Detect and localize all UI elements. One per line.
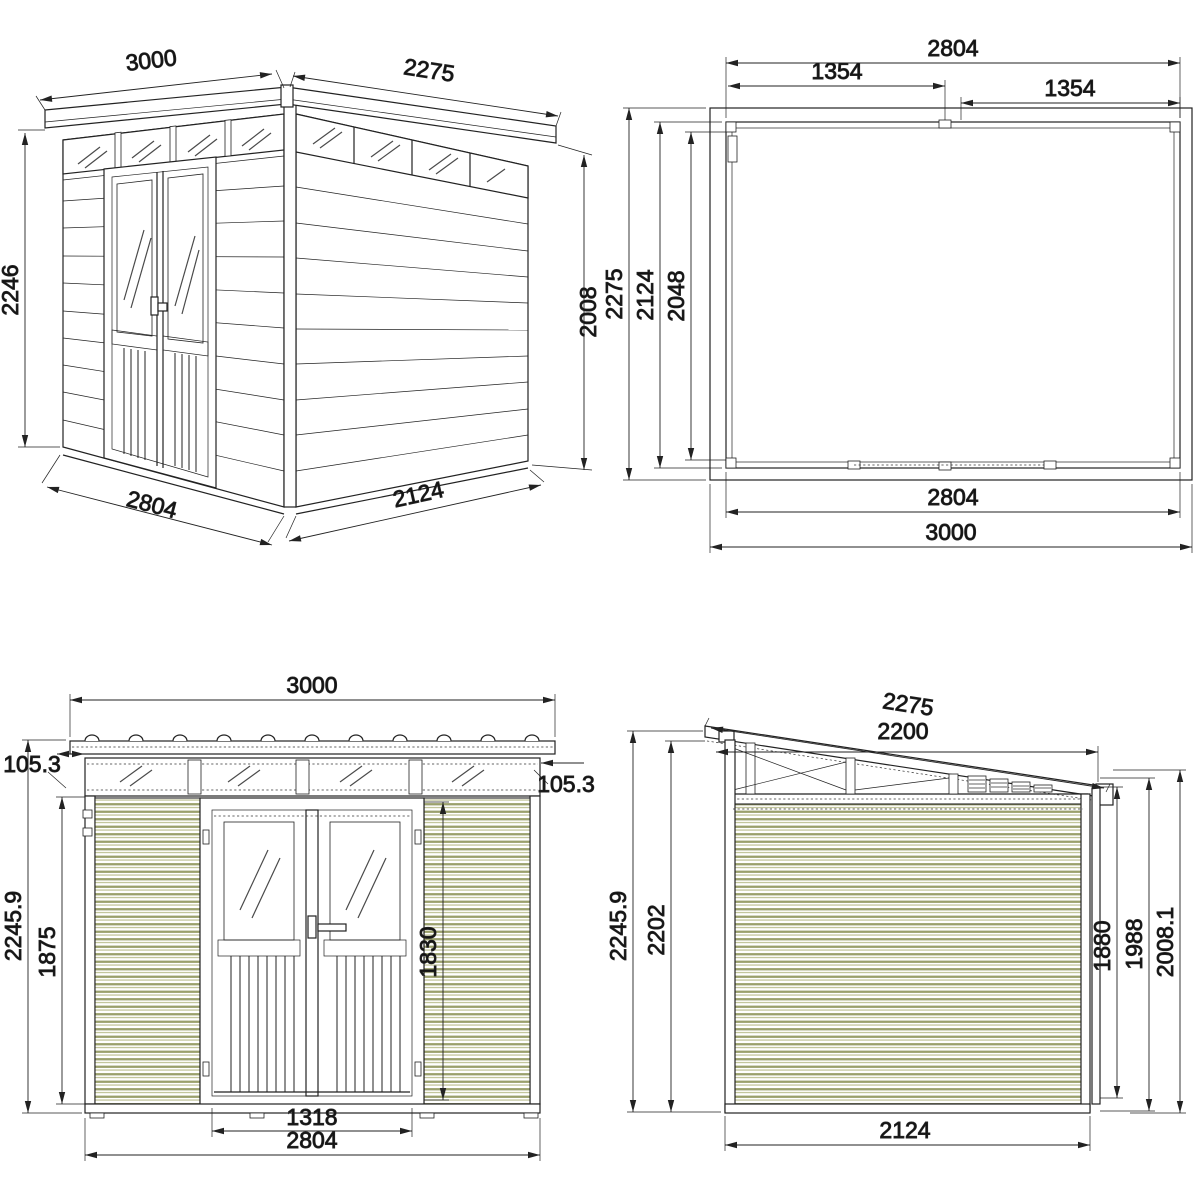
svg-text:2245.9: 2245.9 [0, 891, 26, 961]
svg-text:2246: 2246 [0, 264, 23, 315]
left-siding-panel [95, 798, 200, 1104]
dim-front-wall-2202: 2202 [643, 741, 705, 1112]
svg-text:3000: 3000 [286, 672, 337, 698]
svg-text:2202: 2202 [643, 904, 669, 955]
double-door [104, 157, 216, 488]
door-glass-left [224, 822, 294, 940]
front-edge-post [725, 740, 735, 1112]
side-elevation-drawing [705, 726, 1113, 1113]
base-rail [725, 1104, 1090, 1113]
svg-text:2275: 2275 [881, 687, 935, 720]
svg-text:2124: 2124 [879, 1117, 930, 1143]
dim-plan-clear-depth-2048: 2048 [663, 132, 726, 460]
dim-front-overall-3000: 3000 [70, 672, 555, 737]
roof-truss [728, 743, 1088, 799]
svg-text:2008: 2008 [575, 286, 600, 337]
svg-text:2200: 2200 [877, 718, 928, 744]
svg-text:1880: 1880 [1089, 920, 1115, 971]
svg-text:2245.9: 2245.9 [605, 891, 631, 961]
svg-text:2275: 2275 [601, 268, 627, 319]
panel-front-elevation: 3000 105.3 105.3 2245.9 1875 1830 1318 2… [0, 600, 600, 1200]
door-handle [318, 924, 346, 931]
svg-text:1354: 1354 [811, 58, 862, 84]
perspective-shed-drawing [45, 85, 556, 514]
door-handle [158, 303, 167, 311]
clerestory-band [85, 758, 540, 796]
svg-text:105.3: 105.3 [537, 771, 595, 797]
corner-post [284, 104, 296, 507]
door-lock [151, 297, 158, 315]
dim-side-height-2008: 2008 [532, 145, 600, 470]
panel-perspective-view: 3000 2275 2246 2008 2804 2124 [0, 0, 600, 600]
side-siding-panel [733, 804, 1083, 1104]
wall-frame-outer [726, 122, 1180, 468]
wall-frame-inner [732, 128, 1174, 462]
plan-drawing [710, 108, 1192, 480]
dim-wall-height-1875: 1875 [34, 797, 85, 1104]
dim-plan-half-left-1354: 1354 [728, 58, 945, 120]
dim-depth-2124: 2124 [725, 1116, 1090, 1151]
svg-text:2275: 2275 [402, 53, 456, 86]
dim-roof-plan-2200: 2200 [716, 718, 1098, 782]
roof-band [70, 735, 555, 754]
svg-text:1875: 1875 [34, 926, 60, 977]
svg-text:105.3: 105.3 [3, 751, 61, 777]
svg-text:2048: 2048 [663, 270, 689, 321]
dim-eave-right-105: 105.3 [534, 763, 595, 797]
technical-drawing-sheet: 3000 2275 2246 2008 2804 2124 [0, 0, 1200, 1200]
door-glass-right [330, 822, 400, 940]
svg-text:3000: 3000 [925, 519, 976, 545]
roof-outline [710, 108, 1192, 480]
dim-eave-left-105: 105.3 [3, 751, 84, 788]
front-elevation-drawing [70, 735, 555, 1118]
svg-text:1988: 1988 [1121, 918, 1147, 969]
panel-plan-view: 2804 1354 1354 2275 2124 2048 2804 3000 [600, 0, 1200, 600]
dim-plan-half-right-1354: 1354 [961, 75, 1180, 120]
svg-text:2804: 2804 [286, 1127, 337, 1153]
panel-side-elevation: 2275 2200 2245.9 2202 1880 1988 2008.1 2… [600, 600, 1200, 1200]
svg-text:2804: 2804 [927, 35, 978, 61]
dim-front-height-2246: 2246 [0, 130, 60, 447]
right-corner-post [530, 796, 540, 1104]
svg-text:2804: 2804 [124, 485, 180, 523]
svg-text:2124: 2124 [632, 269, 658, 320]
door-lock [308, 916, 316, 938]
dim-plan-bottom-2804: 2804 [726, 472, 1180, 518]
dim-plan-top-2804: 2804 [726, 35, 1180, 118]
svg-text:3000: 3000 [124, 44, 178, 76]
svg-text:2804: 2804 [927, 484, 978, 510]
double-door [200, 798, 424, 1106]
left-corner-post [85, 796, 95, 1104]
svg-text:1830: 1830 [415, 926, 441, 977]
svg-text:2008.1: 2008.1 [1152, 907, 1178, 977]
frame-connectors [726, 120, 1180, 470]
svg-text:1354: 1354 [1044, 75, 1095, 101]
